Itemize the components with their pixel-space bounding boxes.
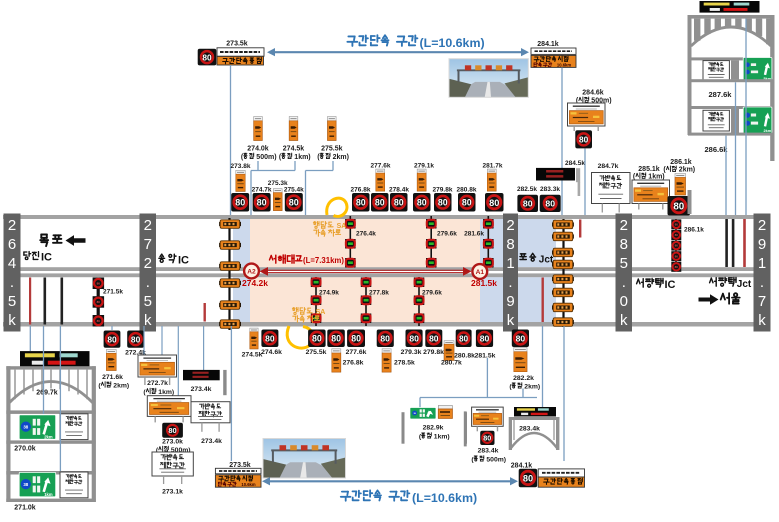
svg-text:9: 9: [758, 236, 766, 253]
svg-text:80: 80: [356, 198, 366, 208]
svg-text:284.6k: 284.6k: [582, 90, 604, 97]
svg-text:80: 80: [675, 254, 679, 258]
svg-text:2: 2: [620, 217, 628, 234]
svg-text:(L=10.6km): (L=10.6km): [412, 491, 477, 505]
svg-text:k: k: [620, 312, 628, 329]
svg-text:80: 80: [375, 198, 385, 208]
svg-text:275.5k: 275.5k: [306, 349, 327, 356]
svg-text:80: 80: [579, 135, 589, 145]
svg-text:38: 38: [23, 425, 28, 430]
svg-text:10.6km: 10.6km: [241, 482, 255, 487]
svg-text:80: 80: [673, 202, 684, 213]
svg-text:80: 80: [107, 334, 117, 344]
svg-text:80: 80: [417, 198, 427, 208]
svg-text:80: 80: [289, 198, 299, 208]
svg-text:274.7k: 274.7k: [252, 187, 272, 194]
svg-text:279.8k: 279.8k: [423, 349, 444, 356]
svg-text:k: k: [144, 312, 152, 329]
svg-text:271.5k: 271.5k: [103, 289, 123, 296]
svg-text:IC: IC: [665, 279, 676, 291]
svg-text:279.1k: 279.1k: [414, 163, 434, 170]
svg-text:8: 8: [620, 236, 628, 253]
svg-text:80: 80: [675, 244, 679, 248]
svg-text:0: 0: [620, 293, 628, 310]
svg-text:6: 6: [8, 236, 16, 253]
svg-text:283.4k: 283.4k: [478, 448, 499, 455]
svg-text:273.8k: 273.8k: [231, 163, 251, 170]
svg-text:1km): 1km): [434, 433, 450, 440]
svg-text:284.1k: 284.1k: [537, 41, 559, 48]
svg-text:284.1k: 284.1k: [511, 463, 533, 470]
svg-text:80: 80: [523, 199, 533, 209]
svg-text:80: 80: [483, 434, 491, 443]
svg-text:k: k: [758, 312, 766, 329]
svg-text:273.4k: 273.4k: [191, 386, 212, 393]
svg-text:275.4k: 275.4k: [284, 187, 304, 194]
svg-text:286.1k: 286.1k: [670, 159, 692, 166]
svg-text:278.5k: 278.5k: [394, 360, 415, 367]
svg-text:2km): 2km): [333, 154, 349, 161]
svg-text:281.6k: 281.6k: [464, 231, 484, 238]
svg-text:283.4k: 283.4k: [519, 426, 540, 433]
svg-text:IC: IC: [41, 252, 52, 264]
svg-text:SA: SA: [337, 223, 347, 230]
svg-text:A2: A2: [247, 269, 256, 276]
svg-text:IC: IC: [178, 255, 189, 267]
svg-text:38: 38: [23, 482, 28, 487]
svg-text:80: 80: [97, 319, 101, 323]
svg-text:80: 80: [545, 199, 555, 209]
svg-text:282.2k: 282.2k: [513, 375, 534, 382]
svg-text:281.5k: 281.5k: [475, 353, 496, 360]
svg-text:1: 1: [506, 255, 514, 272]
svg-text:A1: A1: [476, 269, 485, 276]
svg-text:80: 80: [131, 334, 141, 344]
svg-text:80: 80: [523, 474, 533, 484]
svg-text:272.7k: 272.7k: [147, 380, 168, 387]
svg-text:1: 1: [758, 255, 766, 272]
svg-text:275.5k: 275.5k: [321, 146, 343, 153]
svg-text:276.4k: 276.4k: [356, 231, 376, 238]
svg-text:269.7k: 269.7k: [36, 390, 58, 397]
svg-text:5: 5: [144, 293, 152, 310]
svg-text:282.9k: 282.9k: [423, 425, 444, 432]
svg-text:285.1k: 285.1k: [638, 166, 660, 173]
svg-text:279.3k: 279.3k: [401, 349, 422, 356]
svg-text:286.6k: 286.6k: [705, 145, 729, 154]
svg-text:284.5k: 284.5k: [565, 160, 585, 167]
svg-text:80: 80: [480, 334, 490, 344]
svg-text:1km): 1km): [294, 154, 310, 161]
svg-text:282.5k: 282.5k: [517, 186, 537, 193]
svg-text:2km): 2km): [679, 167, 695, 174]
svg-text:273.1k: 273.1k: [162, 489, 183, 496]
svg-text:80: 80: [331, 334, 341, 344]
svg-text:274.2k: 274.2k: [242, 278, 268, 288]
svg-text:SA: SA: [316, 309, 326, 316]
svg-text:2km): 2km): [524, 383, 540, 390]
svg-text:80: 80: [489, 198, 499, 208]
svg-text:279.8k: 279.8k: [433, 187, 453, 194]
svg-text:273.0k: 273.0k: [162, 439, 183, 446]
svg-text:80: 80: [409, 334, 419, 344]
svg-text:80: 80: [438, 198, 448, 208]
svg-text:273.4k: 273.4k: [201, 438, 222, 445]
svg-text:274.0k: 274.0k: [247, 146, 269, 153]
svg-text:276.8k: 276.8k: [351, 187, 371, 194]
svg-text:80: 80: [394, 198, 404, 208]
svg-text:5: 5: [620, 255, 628, 272]
svg-text:80: 80: [462, 198, 472, 208]
svg-text:80: 80: [675, 233, 679, 237]
svg-text:1km: 1km: [44, 492, 53, 497]
svg-text:80: 80: [312, 334, 322, 344]
svg-text:80: 80: [257, 198, 267, 208]
svg-text:80: 80: [97, 300, 101, 304]
svg-text:80: 80: [351, 334, 361, 344]
svg-text:2: 2: [144, 217, 152, 234]
svg-text:.: .: [508, 274, 512, 291]
svg-text:(L=7.31km): (L=7.31km): [303, 256, 344, 265]
svg-text:280.8k: 280.8k: [454, 353, 475, 360]
svg-text:2: 2: [144, 255, 152, 272]
svg-text:280.7k: 280.7k: [441, 360, 462, 367]
svg-text:9: 9: [506, 293, 514, 310]
svg-text:k: k: [507, 312, 515, 329]
svg-text:276.8k: 276.8k: [343, 360, 364, 367]
svg-text:1km): 1km): [158, 389, 174, 396]
svg-text:4: 4: [8, 255, 16, 272]
svg-text:274.5k: 274.5k: [283, 146, 305, 153]
svg-text:5: 5: [8, 293, 16, 310]
svg-text:.: .: [760, 274, 764, 291]
svg-text:277.6k: 277.6k: [371, 163, 391, 170]
svg-text:2km: 2km: [763, 129, 771, 133]
svg-text:274.5k: 274.5k: [242, 352, 263, 359]
svg-text:281.7k: 281.7k: [483, 163, 503, 170]
svg-text:274.9k: 274.9k: [319, 290, 339, 297]
svg-text:10.6km: 10.6km: [557, 63, 571, 68]
svg-text:(L=10.6km): (L=10.6km): [420, 36, 485, 50]
svg-text:280.8k: 280.8k: [457, 187, 477, 194]
svg-text:7: 7: [144, 236, 152, 253]
svg-text:80: 80: [429, 334, 439, 344]
svg-text:7: 7: [758, 293, 766, 310]
svg-text:500m): 500m): [256, 154, 276, 161]
svg-text:2: 2: [758, 217, 766, 234]
svg-text:2: 2: [8, 217, 16, 234]
svg-text:.: .: [10, 274, 14, 291]
svg-text:1km): 1km): [648, 174, 664, 181]
svg-text:284.7k: 284.7k: [598, 163, 619, 170]
svg-text:80: 80: [459, 334, 468, 343]
svg-text:287.6k: 287.6k: [709, 90, 733, 99]
svg-text:277.8k: 277.8k: [369, 290, 389, 297]
svg-text:8: 8: [506, 236, 514, 253]
svg-text:.: .: [622, 274, 626, 291]
svg-text:80: 80: [380, 334, 390, 344]
svg-text:2km): 2km): [113, 382, 129, 389]
svg-text:Jct: Jct: [539, 255, 554, 266]
svg-text:80: 80: [235, 198, 245, 208]
svg-text:80: 80: [675, 223, 679, 227]
svg-text:2: 2: [506, 217, 514, 234]
svg-text:273.5k: 273.5k: [226, 41, 248, 48]
svg-text:500m): 500m): [486, 456, 506, 463]
svg-text:80: 80: [265, 334, 275, 344]
svg-text:283.3k: 283.3k: [540, 186, 560, 193]
svg-text:279.6k: 279.6k: [437, 231, 457, 238]
svg-text:.: .: [146, 274, 150, 291]
svg-text:281.5k: 281.5k: [471, 278, 497, 288]
svg-text:271.6k: 271.6k: [102, 374, 123, 381]
svg-text:k: k: [8, 312, 16, 329]
svg-text:270.0k: 270.0k: [14, 446, 36, 453]
svg-text:80: 80: [97, 281, 101, 285]
svg-text:80: 80: [516, 334, 526, 344]
svg-text:Jct: Jct: [737, 279, 752, 290]
svg-text:278.4k: 278.4k: [389, 187, 409, 194]
svg-text:279.6k: 279.6k: [422, 290, 442, 297]
svg-text:271.0k: 271.0k: [14, 505, 36, 512]
svg-text:277.6k: 277.6k: [346, 349, 367, 356]
svg-text:80: 80: [168, 426, 176, 435]
svg-text:2km: 2km: [44, 435, 53, 440]
svg-text:80: 80: [202, 52, 212, 62]
svg-text:274.6k: 274.6k: [261, 349, 282, 356]
svg-text:80: 80: [675, 265, 679, 269]
svg-text:286.1k: 286.1k: [684, 227, 704, 234]
